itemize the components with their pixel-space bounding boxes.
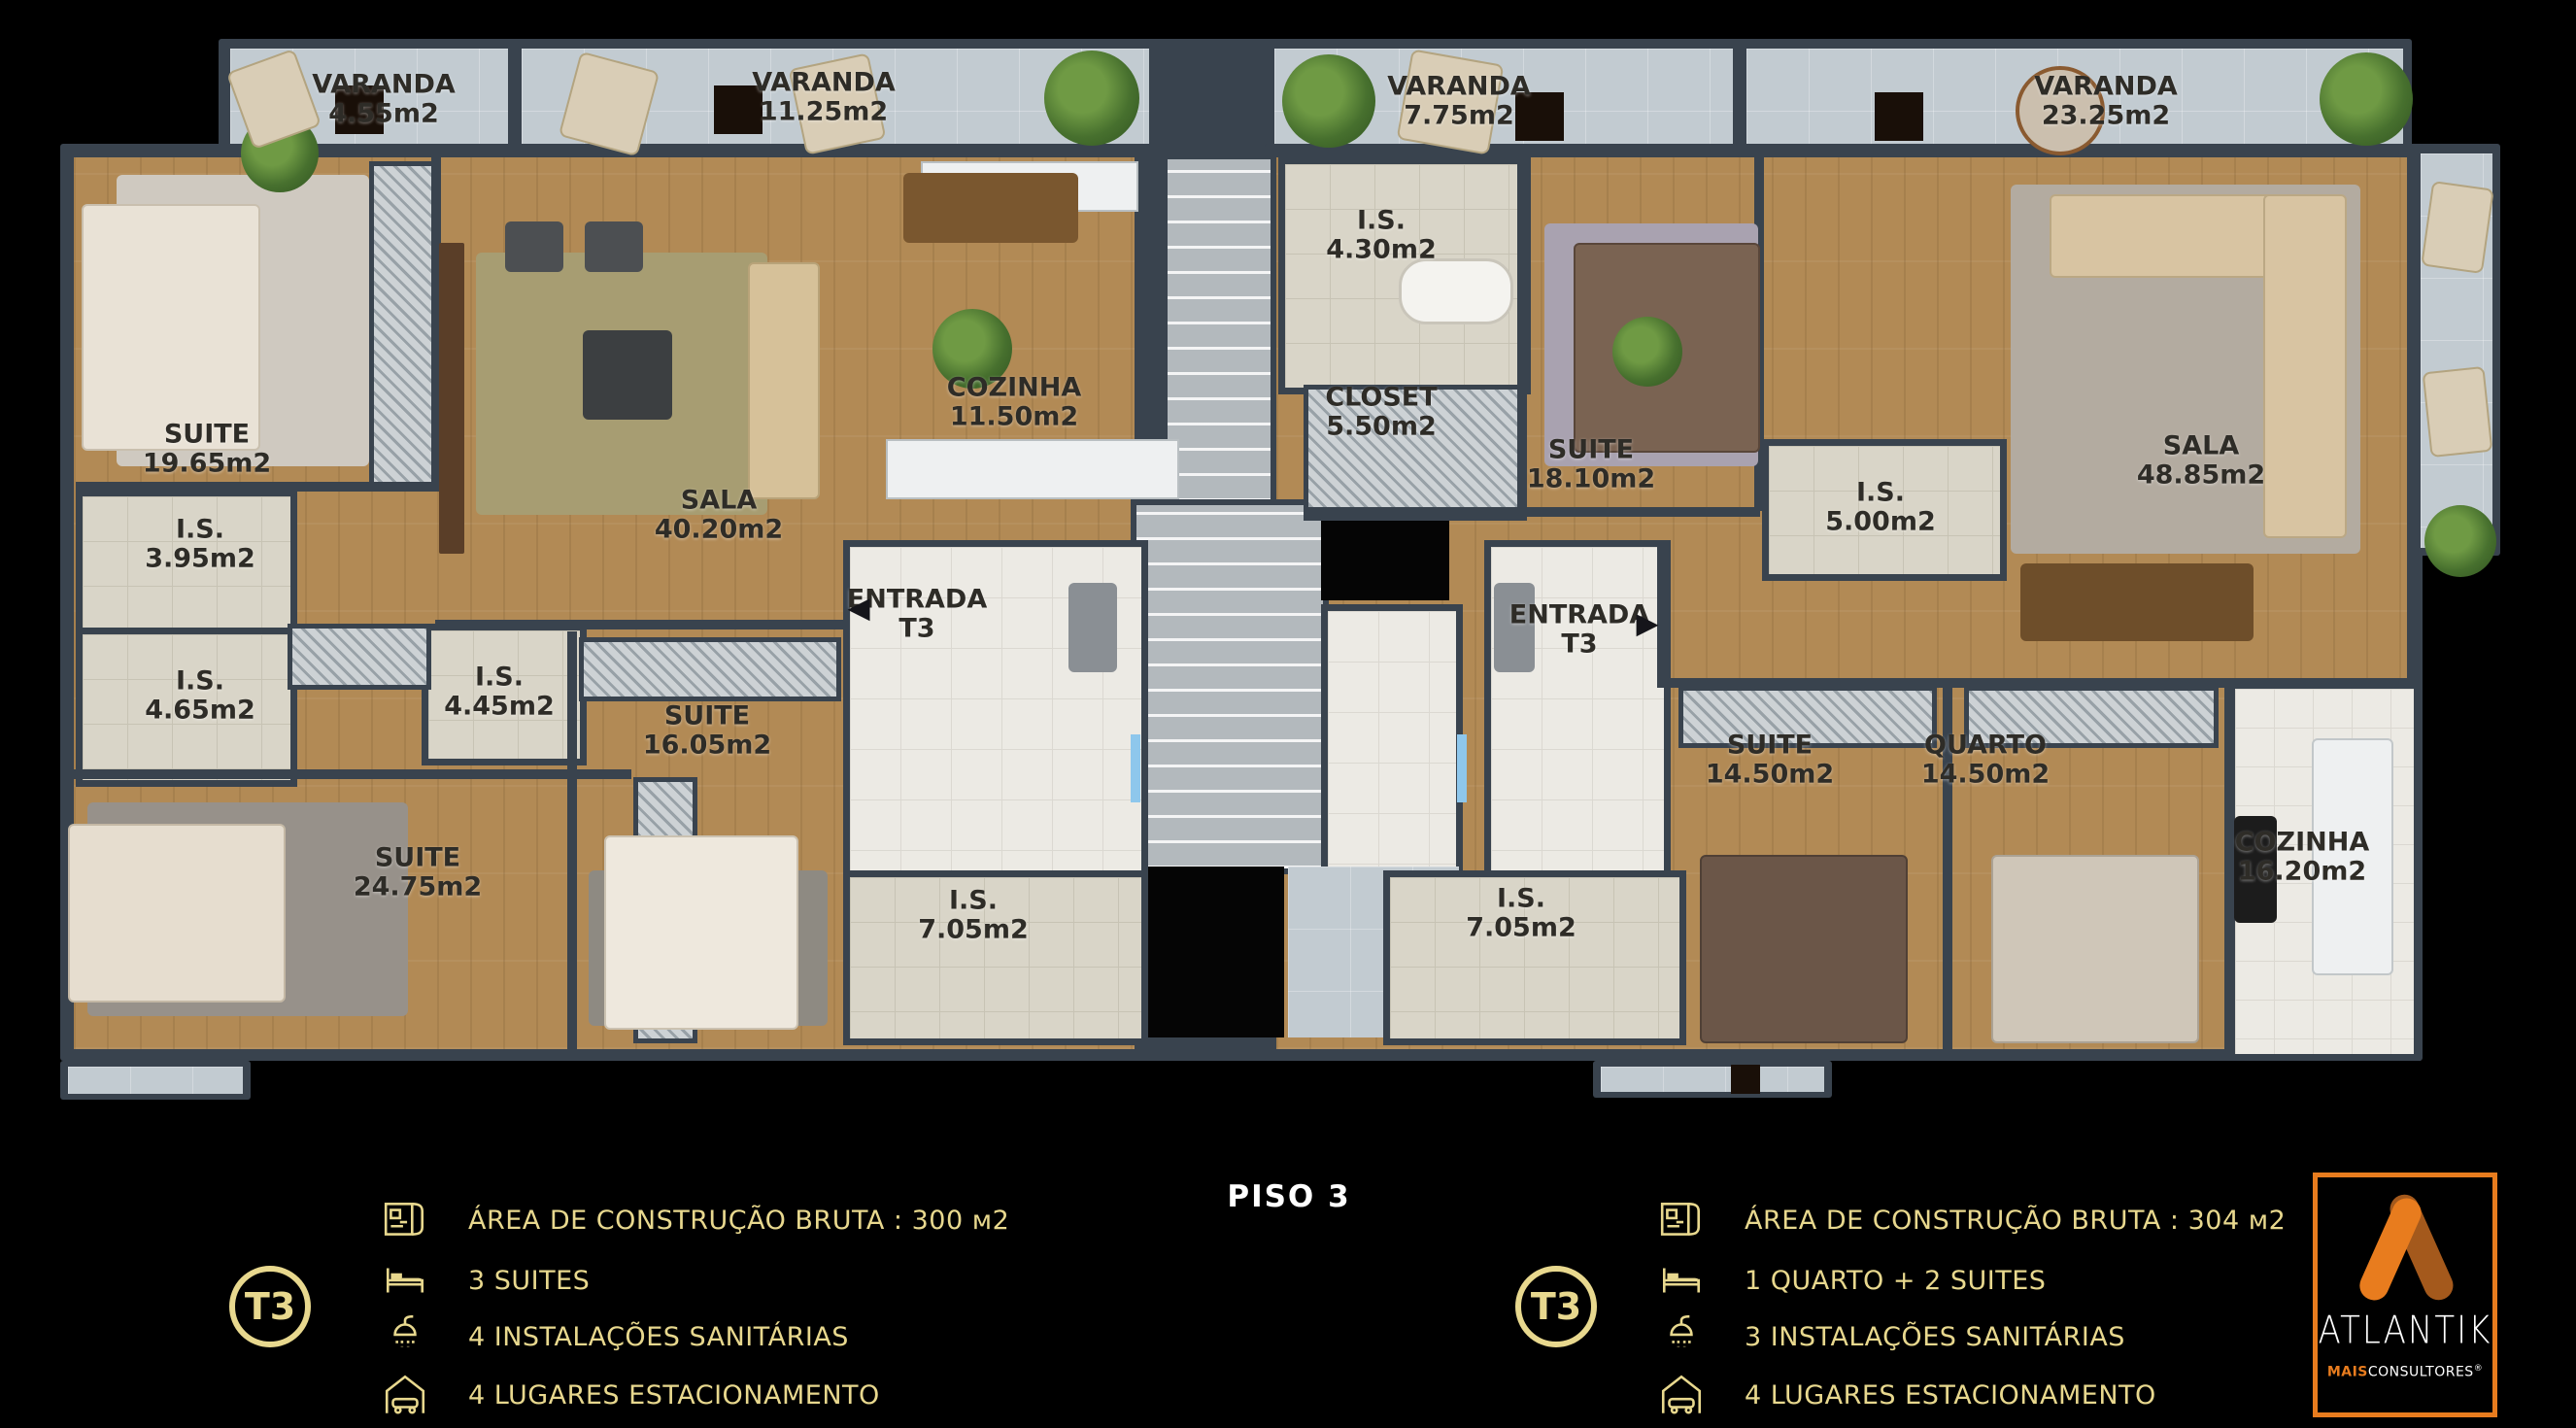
- room-name: VARANDA: [1387, 72, 1531, 101]
- bed-graphic: [1700, 855, 1908, 1043]
- t3-badge-right: T3: [1515, 1266, 1597, 1347]
- room-area: 7.75m2: [1387, 101, 1531, 130]
- legend-item: 4 LUGARES ESTACIONAMENTO: [381, 1370, 880, 1420]
- room-area: 4.55m2: [312, 99, 456, 128]
- room-area: 4.30m2: [1326, 235, 1437, 264]
- room-area: 5.50m2: [1325, 412, 1437, 441]
- room-label-suite-18-10: SUITE18.10m2: [1527, 435, 1655, 493]
- wardrobe-graphic: [369, 161, 441, 492]
- dining-table-graphic: [2020, 563, 2254, 641]
- room-area: 19.65m2: [143, 449, 271, 478]
- room-label-sala-40-20: SALA40.20m2: [655, 486, 783, 543]
- room-label-suite-14-50: SUITE14.50m2: [1706, 731, 1834, 788]
- room-name: SUITE: [354, 843, 482, 872]
- room-area: T3: [1509, 629, 1649, 659]
- legend-item-label: 1 QUARTO + 2 SUITES: [1745, 1266, 2046, 1296]
- wall: [1657, 678, 2415, 688]
- room-label-is-3-95: I.S.3.95m2: [145, 515, 255, 572]
- room-label-cozinha-16-20: COZINHA16.20m2: [2235, 828, 2369, 885]
- door-marker: [1131, 734, 1140, 802]
- legend-item-label: ÁREA DE CONSTRUÇÃO BRUTA : 304 м2: [1745, 1206, 2286, 1236]
- bed-graphic: [604, 835, 798, 1030]
- plant-graphic: [1282, 54, 1375, 148]
- room-name: ENTRADA: [1509, 600, 1649, 629]
- room-name: I.S.: [1825, 478, 1936, 507]
- room-name: COZINHA: [2235, 828, 2369, 857]
- room-label-is-5-00: I.S.5.00m2: [1825, 478, 1936, 535]
- armchair-graphic: [505, 221, 563, 272]
- legend-item: 4 LUGARES ESTACIONAMENTO: [1657, 1370, 2156, 1420]
- room-label-entrada-right: ENTRADAT3: [1509, 600, 1649, 658]
- legend-item-label: 4 INSTALAÇÕES SANITÁRIAS: [468, 1322, 849, 1352]
- room-area: 24.75m2: [354, 872, 482, 901]
- wall: [2224, 682, 2234, 1049]
- room-label-suite-19-65: SUITE19.65m2: [143, 420, 271, 477]
- room-area: 5.00m2: [1825, 507, 1936, 536]
- bed-icon: [1657, 1256, 1706, 1305]
- t3-badge-left: T3: [229, 1266, 311, 1347]
- room-area: 18.10m2: [1527, 464, 1655, 493]
- room-area: 16.20m2: [2235, 857, 2369, 886]
- room-name: SALA: [2137, 431, 2265, 460]
- room-area: 3.95m2: [145, 544, 255, 573]
- room-name: SUITE: [143, 420, 271, 449]
- room-area: 11.50m2: [947, 402, 1081, 431]
- room-area: 40.20m2: [655, 515, 783, 544]
- room-name: COZINHA: [947, 373, 1081, 402]
- bed-icon: [381, 1256, 429, 1305]
- shower-icon: [381, 1312, 429, 1361]
- wall: [1304, 507, 1760, 517]
- room-name: SUITE: [1706, 731, 1834, 760]
- room-area: 7.05m2: [1466, 913, 1576, 942]
- wall: [60, 769, 631, 779]
- fire-pit-graphic: [1875, 92, 1923, 141]
- legend-item-label: 3 INSTALAÇÕES SANITÁRIAS: [1745, 1322, 2125, 1352]
- room-label-sala-48-85: SALA48.85m2: [2137, 431, 2265, 489]
- legend-item: 1 QUARTO + 2 SUITES: [1657, 1255, 2046, 1306]
- room-label-varanda-4: VARANDA23.25m2: [2034, 72, 2178, 129]
- page-title: PISO 3: [1227, 1179, 1350, 1214]
- room-area: 4.65m2: [145, 696, 255, 725]
- bench-graphic: [1068, 583, 1117, 672]
- room-name: SUITE: [643, 701, 771, 731]
- bathtub-graphic: [1399, 258, 1513, 324]
- room-name: I.S.: [145, 515, 255, 544]
- room-label-suite-24-75: SUITE24.75m2: [354, 843, 482, 901]
- wall: [567, 631, 577, 1049]
- plant-graphic: [1612, 317, 1682, 387]
- wardrobe-graphic: [579, 637, 841, 701]
- bottom-center-balcony: [1601, 1067, 1824, 1092]
- lounge-chair-graphic: [2421, 181, 2494, 274]
- floor-plan-page: { "title": { "floor": "PISO 3" }, "color…: [0, 0, 2576, 1428]
- floor-plan-icon: [1657, 1196, 1706, 1244]
- room-name: I.S.: [145, 666, 255, 696]
- stairwell-lower: [1131, 499, 1329, 874]
- garage-icon: [381, 1371, 429, 1419]
- legend-item-label: ÁREA DE CONSTRUÇÃO BRUTA : 300 м2: [468, 1206, 1009, 1236]
- room-area: 16.05m2: [643, 731, 771, 760]
- room-name: SALA: [655, 486, 783, 515]
- brand-subtitle-accent: MAIS: [2327, 1365, 2368, 1380]
- sofa-graphic: [2263, 194, 2347, 538]
- bed-graphic: [68, 824, 286, 1003]
- room-area: 7.05m2: [918, 915, 1029, 944]
- room-name: VARANDA: [752, 68, 896, 97]
- registered-mark: ®: [2474, 1364, 2484, 1374]
- atlantik-logo: ATLANTIK MAISCONSULTORES®: [2313, 1173, 2497, 1417]
- sofa-graphic: [748, 262, 820, 499]
- kitchen-counter-graphic: [886, 439, 1179, 499]
- room-name: SUITE: [1527, 435, 1655, 464]
- wall: [435, 620, 847, 629]
- room-label-suite-16-05: SUITE16.05m2: [643, 701, 771, 759]
- bed-graphic: [82, 204, 260, 451]
- room-area: 11.25m2: [752, 97, 896, 126]
- room-label-is-7-05-right: I.S.7.05m2: [1466, 884, 1576, 941]
- plant-graphic: [2424, 505, 2496, 577]
- legend-item: 4 INSTALAÇÕES SANITÁRIAS: [381, 1311, 849, 1362]
- room-label-cozinha-11-50: COZINHA11.50m2: [947, 373, 1081, 430]
- room-label-is-7-05-left: I.S.7.05m2: [918, 886, 1029, 943]
- wall: [1517, 157, 1527, 511]
- brand-subtitle: MAISCONSULTORES®: [2318, 1364, 2492, 1380]
- room-label-is-4-30: I.S.4.30m2: [1326, 206, 1437, 263]
- legend-item: 3 INSTALAÇÕES SANITÁRIAS: [1657, 1311, 2125, 1362]
- brand-subtitle-rest: CONSULTORES: [2368, 1365, 2474, 1380]
- legend-item: 3 SUITES: [381, 1255, 590, 1306]
- room-label-varanda-3: VARANDA7.75m2: [1387, 72, 1531, 129]
- legend-item: ÁREA DE CONSTRUÇÃO BRUTA : 300 м2: [381, 1195, 1009, 1245]
- room-name: VARANDA: [2034, 72, 2178, 101]
- core-landing: [1321, 604, 1463, 876]
- room-label-quarto-14-50: QUARTO14.50m2: [1921, 731, 2050, 788]
- lounge-chair-graphic: [2423, 366, 2493, 458]
- entrance-arrow-left-icon: ◀: [847, 592, 869, 626]
- room-area: 14.50m2: [1921, 760, 2050, 789]
- room-label-varanda-2: VARANDA11.25m2: [752, 68, 896, 125]
- wardrobe-graphic: [288, 624, 431, 690]
- legend-item-label: 3 SUITES: [468, 1266, 590, 1296]
- room-area: 4.45m2: [444, 692, 555, 721]
- room-label-is-4-45: I.S.4.45m2: [444, 663, 555, 720]
- room-name: I.S.: [1466, 884, 1576, 913]
- legend-item-label: 4 LUGARES ESTACIONAMENTO: [468, 1380, 880, 1411]
- plant-graphic: [2320, 52, 2413, 146]
- room-name: CLOSET: [1325, 383, 1437, 412]
- fire-pit-graphic: [1731, 1065, 1760, 1094]
- bed-graphic: [1991, 855, 2199, 1043]
- atlantik-a-mark-icon: [2345, 1189, 2471, 1308]
- wall: [76, 482, 441, 492]
- room-name: I.S.: [918, 886, 1029, 915]
- floor-plan-icon: [381, 1196, 429, 1244]
- tv-unit-graphic: [439, 243, 464, 554]
- dining-table-graphic: [903, 173, 1078, 243]
- room-area: 23.25m2: [2034, 101, 2178, 130]
- legend-item: ÁREA DE CONSTRUÇÃO BRUTA : 304 м2: [1657, 1195, 2286, 1245]
- room-name: VARANDA: [312, 70, 456, 99]
- room-name: QUARTO: [1921, 731, 2050, 760]
- entrance-arrow-right-icon: ▶: [1636, 607, 1658, 641]
- brand-name: ATLANTIK: [2318, 1309, 2492, 1353]
- shower-icon: [1657, 1312, 1706, 1361]
- bottom-left-balcony: [68, 1067, 243, 1094]
- door-marker: [1457, 734, 1467, 802]
- room-area: 48.85m2: [2137, 460, 2265, 490]
- room-area: 14.50m2: [1706, 760, 1834, 789]
- room-label-closet: CLOSET5.50m2: [1325, 383, 1437, 440]
- room-label-is-4-65: I.S.4.65m2: [145, 666, 255, 724]
- plant-graphic: [1044, 51, 1139, 146]
- legend-item-label: 4 LUGARES ESTACIONAMENTO: [1745, 1380, 2156, 1411]
- garage-icon: [1657, 1371, 1706, 1419]
- coffee-table-graphic: [583, 330, 672, 420]
- room-name: I.S.: [1326, 206, 1437, 235]
- room-name: I.S.: [444, 663, 555, 692]
- armchair-graphic: [585, 221, 643, 272]
- room-label-varanda-1: VARANDA4.55m2: [312, 70, 456, 127]
